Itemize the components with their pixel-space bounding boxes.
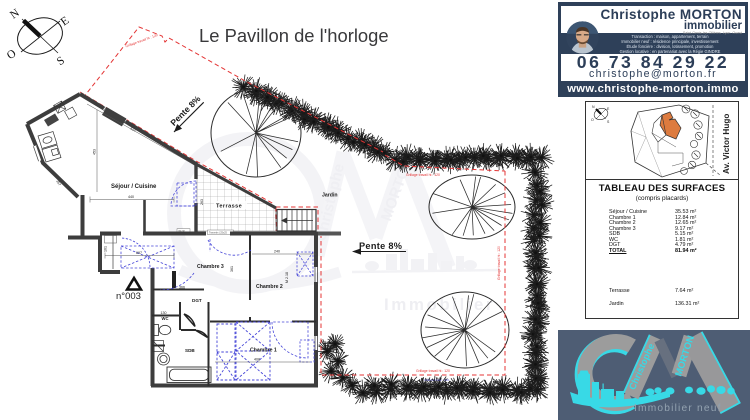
svg-text:N: N bbox=[592, 105, 595, 109]
svg-text:130: 130 bbox=[161, 311, 167, 315]
svg-text:WC: WC bbox=[162, 316, 169, 321]
svg-text:Grillage travail ht : 120: Grillage travail ht : 120 bbox=[497, 246, 501, 280]
svg-text:E: E bbox=[607, 107, 610, 111]
svg-text:Terrasse: Terrasse bbox=[216, 204, 242, 210]
svg-text:Pente 8%: Pente 8% bbox=[359, 241, 402, 251]
svg-text:M 2.18: M 2.18 bbox=[285, 272, 289, 283]
svg-text:Immobilier: Immobilier bbox=[384, 295, 495, 314]
svg-text:O: O bbox=[591, 118, 594, 122]
svg-text:S: S bbox=[607, 120, 610, 124]
svg-text:361: 361 bbox=[230, 266, 234, 272]
svg-text:697: 697 bbox=[136, 251, 142, 255]
svg-text:Le Pavillon de l'horloge: Le Pavillon de l'horloge bbox=[199, 25, 389, 46]
svg-text:161: 161 bbox=[104, 246, 108, 252]
svg-text:n°003: n°003 bbox=[116, 291, 141, 302]
svg-text:Séjour / Cuisine: Séjour / Cuisine bbox=[111, 184, 157, 190]
svg-text:S: S bbox=[55, 55, 67, 69]
svg-text:N: N bbox=[8, 7, 22, 22]
svg-text:O: O bbox=[5, 47, 19, 62]
svg-text:Chambre 1: Chambre 1 bbox=[250, 348, 277, 354]
svg-text:Grillage travail ht : 120: Grillage travail ht : 120 bbox=[416, 369, 450, 373]
svg-text:Chambre 2: Chambre 2 bbox=[256, 284, 283, 290]
svg-text:240: 240 bbox=[274, 250, 280, 254]
svg-text:366: 366 bbox=[179, 286, 185, 290]
svg-text:Av. Victor Hugo: Av. Victor Hugo bbox=[722, 114, 731, 174]
svg-text:440: 440 bbox=[128, 195, 134, 199]
svg-text:Chambre 3: Chambre 3 bbox=[197, 264, 224, 270]
svg-text:Grillage travail ht : 120: Grillage travail ht : 120 bbox=[125, 33, 158, 48]
svg-text:Grillage travail ht : 120: Grillage travail ht : 120 bbox=[406, 173, 440, 177]
svg-text:SDB: SDB bbox=[185, 348, 195, 353]
svg-text:408: 408 bbox=[254, 358, 260, 362]
svg-text:453: 453 bbox=[93, 149, 97, 155]
svg-text:Jardin: Jardin bbox=[322, 193, 338, 199]
svg-text:Clôture limite : 120: Clôture limite : 120 bbox=[424, 378, 449, 382]
svg-text:Pente 8%: Pente 8% bbox=[168, 93, 202, 127]
svg-text:Travertin | 25x25: Travertin | 25x25 bbox=[209, 231, 227, 234]
svg-text:DGT: DGT bbox=[192, 298, 202, 303]
svg-text:263: 263 bbox=[200, 199, 204, 205]
svg-text:Immobilier neuf: Immobilier neuf bbox=[634, 403, 722, 414]
